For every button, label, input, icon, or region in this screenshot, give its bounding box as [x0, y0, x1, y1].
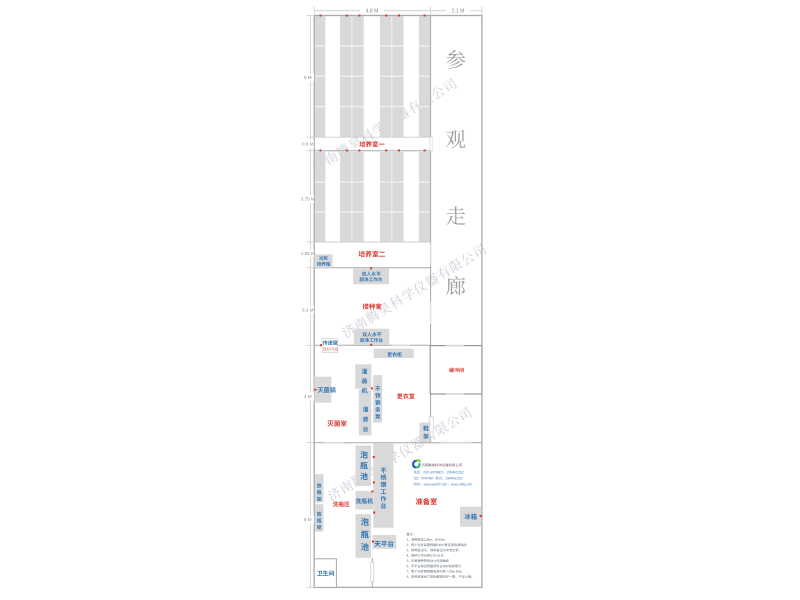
- svg-text:2.1 M: 2.1 M: [452, 9, 465, 15]
- svg-text:6 M: 6 M: [304, 517, 312, 522]
- svg-text:0.6 M: 0.6 M: [302, 142, 314, 147]
- svg-text:3.2 M: 3.2 M: [302, 308, 314, 313]
- svg-text:4 M: 4 M: [304, 394, 312, 399]
- svg-text:5 M: 5 M: [304, 75, 312, 80]
- svg-text:3.75 M: 3.75 M: [301, 197, 315, 202]
- svg-text:4.8 M: 4.8 M: [366, 9, 379, 15]
- svg-text:1.05 M: 1.05 M: [301, 251, 315, 256]
